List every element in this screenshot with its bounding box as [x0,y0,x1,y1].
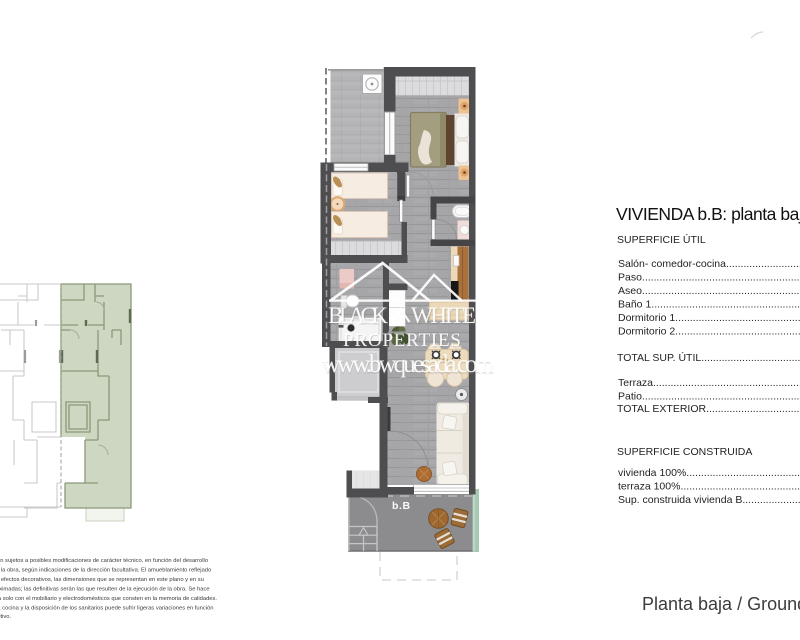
svg-text:WHITE: WHITE [411,303,476,328]
svg-text:Terraza.......................: Terraza.................................… [618,377,800,389]
svg-text:www.bwquesada.com: www.bwquesada.com [322,351,495,378]
svg-text:SUPERFICIE ÚTIL: SUPERFICIE ÚTIL [617,233,706,246]
svg-text:Patio.........................: Patio...................................… [618,391,800,403]
svg-text:TOTAL SUP. ÚTIL...............: TOTAL SUP. ÚTIL.........................… [617,351,800,364]
svg-text:b.B: b.B [392,500,411,512]
svg-text:Sup. construida vivienda B....: Sup. construida vivienda B..............… [618,494,800,506]
svg-text:Aseo..........................: Aseo....................................… [618,285,800,297]
svg-text:la cocina y la disposición de: la cocina y la disposición de los sanita… [0,606,214,612]
svg-text:Baño 1........................: Baño 1..................................… [618,299,800,311]
svg-text:e la obra, según indicaciones: e la obra, según indicaciones de la dire… [0,568,211,574]
svg-text:an sujetos a posibles modifica: an sujetos a posibles modificaciones de … [0,558,208,564]
svg-text:terraza 100%..................: terraza 100%............................… [618,481,800,493]
svg-text:Planta baja / Ground floor: Planta baja / Ground floor [642,594,800,614]
svg-text:PROPERTIES: PROPERTIES [343,330,461,351]
svg-text:Paso..........................: Paso....................................… [618,272,800,284]
svg-text:Salón- comedor-cocina.........: Salón- comedor-cocina...................… [618,258,800,270]
svg-text:SUPERFICIE CONSTRUIDA: SUPERFICIE CONSTRUIDA [617,446,752,458]
svg-text:BLACK: BLACK [328,303,388,328]
svg-text:e efectos decorativos, las dim: e efectos decorativos, las dimensiones q… [0,577,204,583]
svg-text:vivienda 100%.................: vivienda 100%...........................… [618,467,800,479]
svg-text:TOTAL EXTERIOR................: TOTAL EXTERIOR..........................… [617,403,800,415]
svg-text:Dormitorio 2..................: Dormitorio 2............................… [618,326,800,338]
svg-text:Dormitorio 1..................: Dormitorio 1............................… [618,312,800,324]
svg-text:nitivo.: nitivo. [0,614,12,620]
svg-text:ra solo con el mobiliario y el: ra solo con el mobiliario y electrodomés… [0,596,217,602]
svg-text:VIVIENDA b.B: planta baja: VIVIENDA b.B: planta baja [616,204,800,224]
svg-text:oximadas; las definitivas será: oximadas; las definitivas serán las que … [0,587,210,593]
